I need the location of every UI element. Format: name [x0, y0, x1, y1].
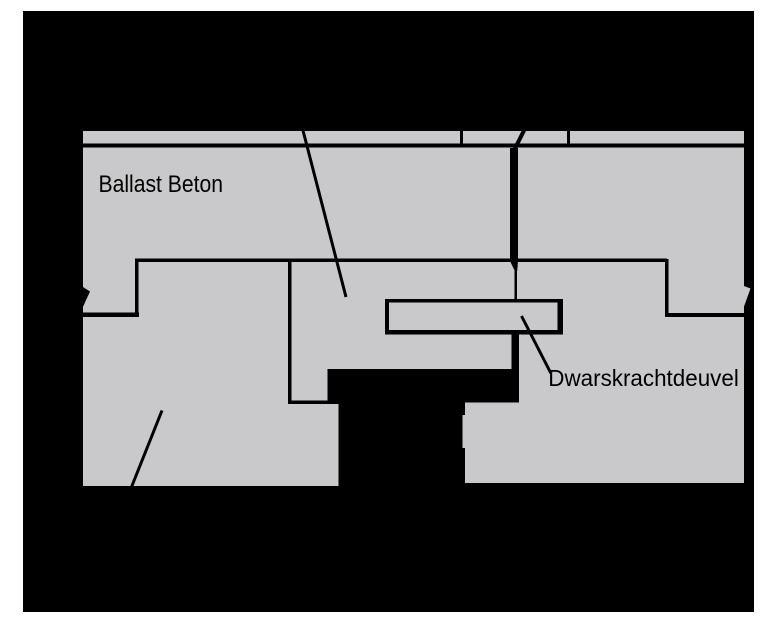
svg-text:Dwarskrachtdeuvel: Dwarskrachtdeuvel: [548, 365, 739, 391]
svg-text:Ballast Beton: Ballast Beton: [99, 172, 224, 198]
